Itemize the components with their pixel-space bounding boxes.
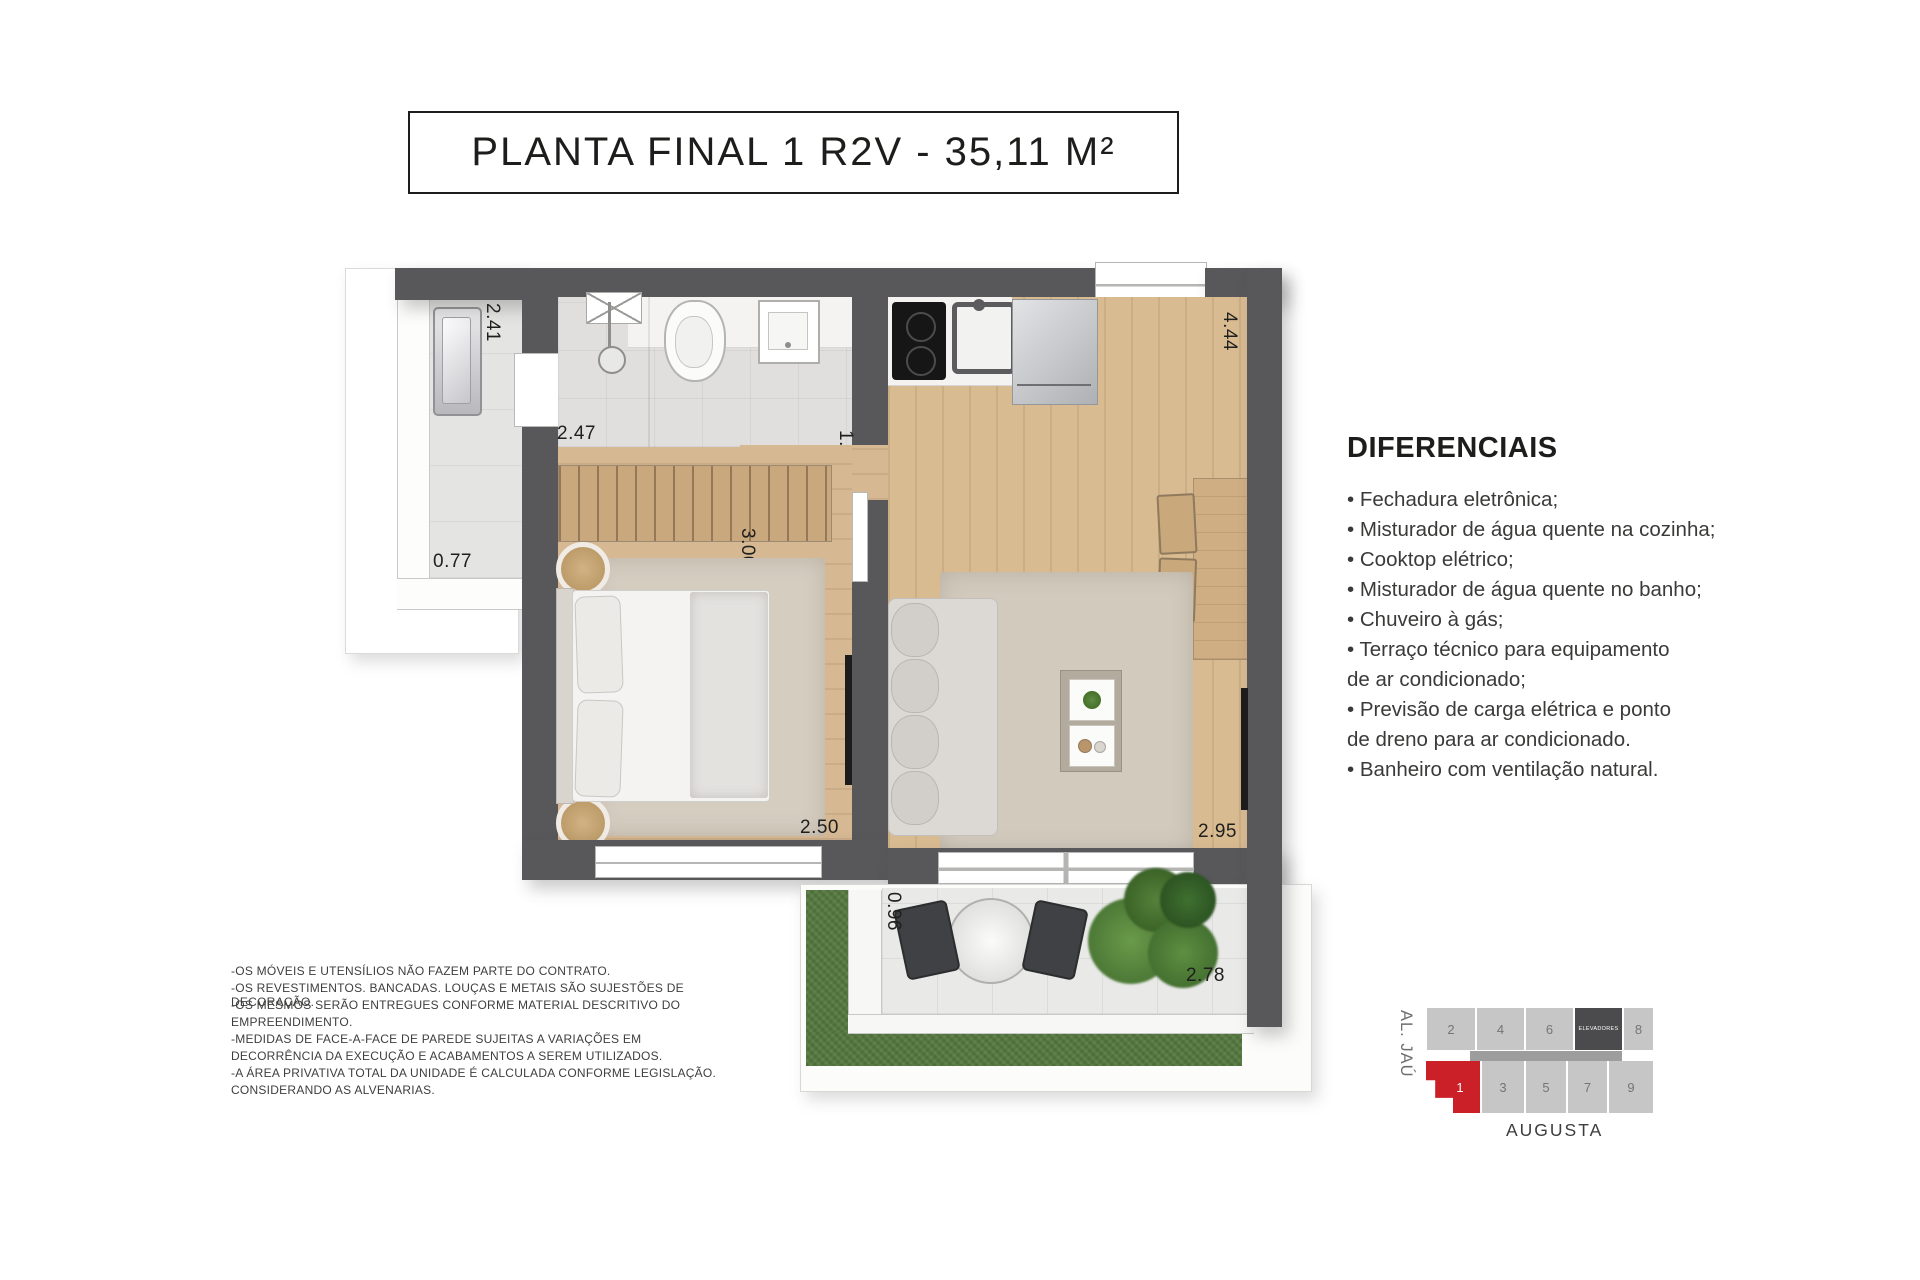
diferenciais-item: • Banheiro com ventilação natural. bbox=[1347, 758, 1767, 788]
disclaimer-line: -OS MESMOS SERÃO ENTREGUES CONFORME MATE… bbox=[231, 998, 751, 1015]
wardrobe bbox=[558, 465, 832, 542]
sofa-cushion-3 bbox=[891, 715, 939, 769]
balcony-grass-bottom bbox=[806, 1032, 1242, 1066]
terrace-railing-bottom bbox=[397, 578, 525, 610]
shower-stem bbox=[608, 302, 611, 350]
shower-niche bbox=[586, 292, 642, 324]
cooktop-burner-2 bbox=[906, 346, 936, 376]
street-label-augusta: AUGUSTA bbox=[1506, 1120, 1603, 1141]
dim-balcony-depth: 0.96 bbox=[884, 892, 903, 931]
bed-pillow-2 bbox=[574, 699, 623, 798]
diferenciais-item: • Misturador de água quente na cozinha; bbox=[1347, 518, 1767, 548]
diferenciais-item-cont: de ar condicionado; bbox=[1347, 668, 1767, 698]
disclaimer-line: -OS MÓVEIS E UTENSÍLIOS NÃO FAZEM PARTE … bbox=[231, 964, 751, 981]
diferenciais-heading: DIFERENCIAIS bbox=[1347, 432, 1558, 465]
ac-unit bbox=[433, 307, 482, 416]
desk bbox=[1193, 478, 1249, 660]
bed-pillow-1 bbox=[574, 595, 623, 694]
dim-living-width: 2.95 bbox=[1198, 822, 1237, 841]
keyplan-unit-4: 4 bbox=[1477, 1008, 1524, 1050]
floor-plan-sheet: PLANTA FINAL 1 R2V - 35,11 M² 2.41 0.77 bbox=[0, 0, 1920, 1280]
keyplan-unit-3: 3 bbox=[1482, 1061, 1524, 1113]
dim-terrace-length: 2.41 bbox=[483, 303, 502, 342]
keyplan-unit-7: 7 bbox=[1568, 1061, 1607, 1113]
coffee-table-tray-plant bbox=[1069, 679, 1115, 721]
kitchen-faucet bbox=[973, 299, 985, 311]
hall-door-leaf bbox=[852, 492, 868, 582]
diferenciais-item: • Terraço técnico para equipamento bbox=[1347, 638, 1767, 668]
wall-right bbox=[1247, 268, 1282, 1027]
disclaimer-line: DECORRÊNCIA DA EXECUÇÃO E ACABAMENTOS A … bbox=[231, 1049, 751, 1066]
sofa-cushion-4 bbox=[891, 771, 939, 825]
diferenciais-item: • Previsão de carga elétrica e ponto bbox=[1347, 698, 1767, 728]
disclaimer-line: CONSIDERANDO AS ALVENARIAS. bbox=[231, 1083, 751, 1100]
toilet-seat bbox=[675, 316, 713, 368]
fridge-handle bbox=[1017, 384, 1091, 386]
fridge bbox=[1012, 299, 1098, 405]
keyplan-corridor bbox=[1470, 1051, 1622, 1061]
sofa bbox=[888, 598, 998, 836]
coffee-table bbox=[1060, 670, 1122, 772]
balcony-rail-vertical bbox=[848, 890, 882, 1014]
keyplan-unit-6: 6 bbox=[1526, 1008, 1573, 1050]
keyplan-unit-8: 8 bbox=[1624, 1008, 1653, 1050]
ac-unit-panel bbox=[442, 317, 471, 404]
plant-small-icon bbox=[1083, 691, 1101, 709]
disclaimer-line: -OS REVESTIMENTOS. BANCADAS. LOUÇAS E ME… bbox=[231, 981, 751, 998]
toilet bbox=[664, 300, 726, 382]
keyplan-unit-2: 2 bbox=[1427, 1008, 1475, 1050]
plant-dark bbox=[1160, 872, 1216, 928]
dim-balcony-width: 2.78 bbox=[1186, 966, 1225, 985]
balcony-table bbox=[948, 898, 1034, 984]
diferenciais-item: • Cooktop elétrico; bbox=[1347, 548, 1767, 578]
shower-head bbox=[598, 346, 626, 374]
keyplan-unit-5: 5 bbox=[1526, 1061, 1566, 1113]
desk-chair-1 bbox=[1156, 493, 1197, 555]
coffee-table-tray-cups bbox=[1069, 725, 1115, 767]
diferenciais-item: • Chuveiro à gás; bbox=[1347, 608, 1767, 638]
kitchen-sink bbox=[952, 302, 1016, 374]
cup-1 bbox=[1078, 739, 1092, 753]
cooktop-burner-1 bbox=[906, 312, 936, 342]
terrace-door bbox=[514, 353, 562, 427]
dim-kitchen-length: 4.44 bbox=[1220, 312, 1239, 351]
cup-2 bbox=[1094, 741, 1106, 753]
keyplan-unit-9: 9 bbox=[1609, 1061, 1653, 1113]
bedroom-window bbox=[595, 846, 822, 878]
dim-terrace-width: 0.77 bbox=[433, 552, 472, 571]
wall-mid-upper bbox=[852, 297, 888, 447]
wall-top bbox=[395, 268, 1095, 300]
bathroom-sink-drain bbox=[785, 342, 791, 348]
keyplan-elevators: ELEVADORES bbox=[1575, 1008, 1622, 1050]
diferenciais-item-cont: de dreno para ar condicionado. bbox=[1347, 728, 1767, 758]
dim-bedroom-width: 2.50 bbox=[800, 818, 839, 837]
living-tv bbox=[1241, 688, 1248, 810]
bed-blanket bbox=[690, 592, 768, 798]
terrace-railing-left bbox=[397, 297, 430, 608]
street-label-al-jau: AL. JAÚ bbox=[1396, 1010, 1415, 1078]
bathroom-divider bbox=[648, 297, 650, 447]
sofa-cushion-2 bbox=[891, 659, 939, 713]
disclaimer-line: EMPREENDIMENTO. bbox=[231, 1015, 751, 1032]
cooktop bbox=[892, 302, 946, 380]
bathroom-sink bbox=[758, 300, 820, 364]
disclaimer-line: -A ÁREA PRIVATIVA TOTAL DA UNIDADE É CAL… bbox=[231, 1066, 751, 1083]
disclaimer-line: -MEDIDAS DE FACE-A-FACE DE PAREDE SUJEIT… bbox=[231, 1032, 751, 1049]
bedroom-tv bbox=[845, 655, 852, 785]
sofa-cushion-1 bbox=[891, 603, 939, 657]
balcony-rail-horizontal bbox=[848, 1014, 1254, 1034]
diferenciais-item: • Misturador de água quente no banho; bbox=[1347, 578, 1767, 608]
diferenciais-item: • Fechadura eletrônica; bbox=[1347, 488, 1767, 518]
dim-bath-width: 2.47 bbox=[557, 424, 596, 443]
